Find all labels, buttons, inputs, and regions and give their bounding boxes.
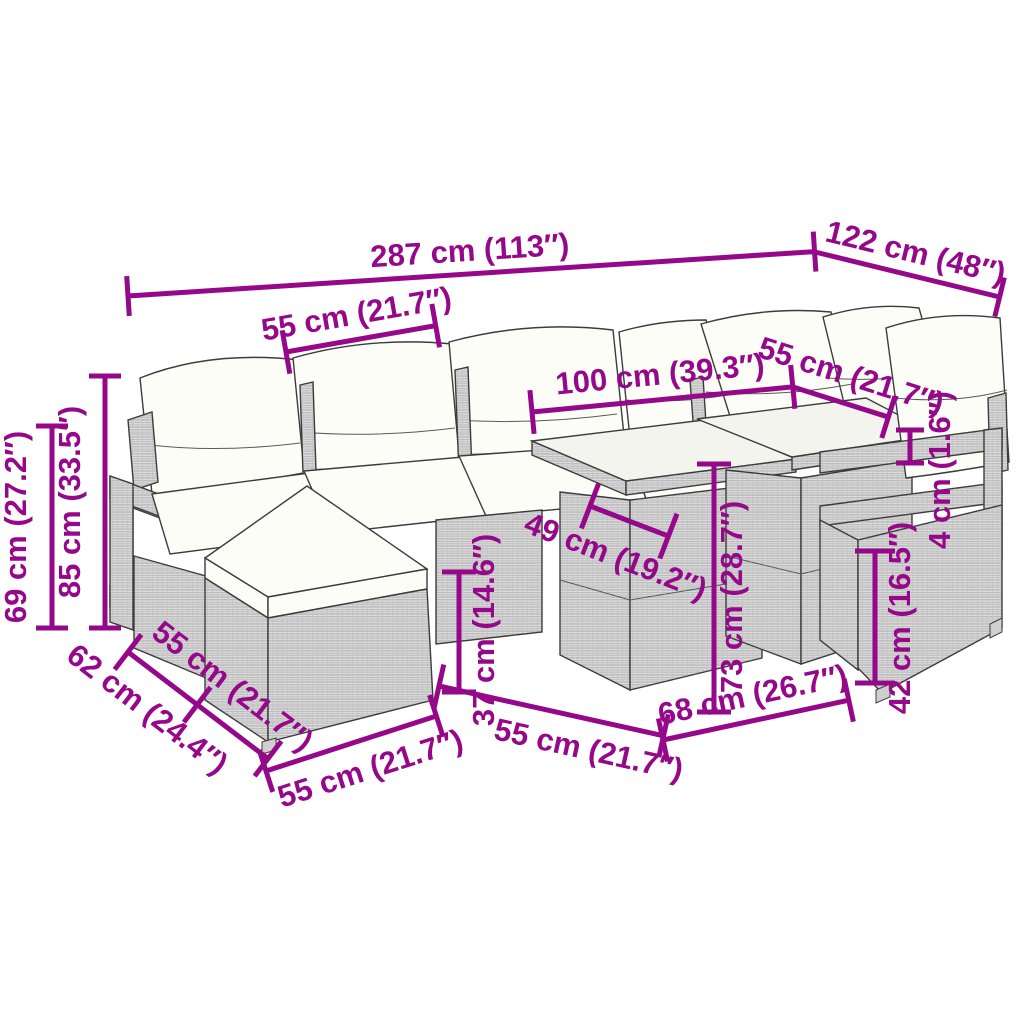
dim-label-overall-depth: 122 cm (48″) <box>822 214 1009 292</box>
dim-label-back-height: 69 cm (27.2″) <box>0 431 33 623</box>
product-dimension-diagram: 287 cm (113″) 122 cm (48″) 55 cm (21.7″)… <box>0 0 1024 1024</box>
dim-overall-depth: 122 cm (48″) <box>810 212 1009 316</box>
back-pillow <box>293 342 463 470</box>
armrest-left-post <box>110 476 133 630</box>
dim-label-tabletop-thickness: 4 cm (1.6″) <box>922 391 957 549</box>
dim-label-seat-height: 42 cm (16.5″) <box>882 522 917 714</box>
dim-label-total-height: 85 cm (33.5″) <box>52 406 87 598</box>
dim-label-table-height: 73 cm (28.7″) <box>714 501 749 693</box>
back-pillow <box>140 357 309 494</box>
dimension-diagram-page: 287 cm (113″) 122 cm (48″) 55 cm (21.7″)… <box>0 0 1024 1024</box>
dim-overall-width: 287 cm (113″) <box>125 211 816 316</box>
armrest-back-post <box>128 412 158 490</box>
